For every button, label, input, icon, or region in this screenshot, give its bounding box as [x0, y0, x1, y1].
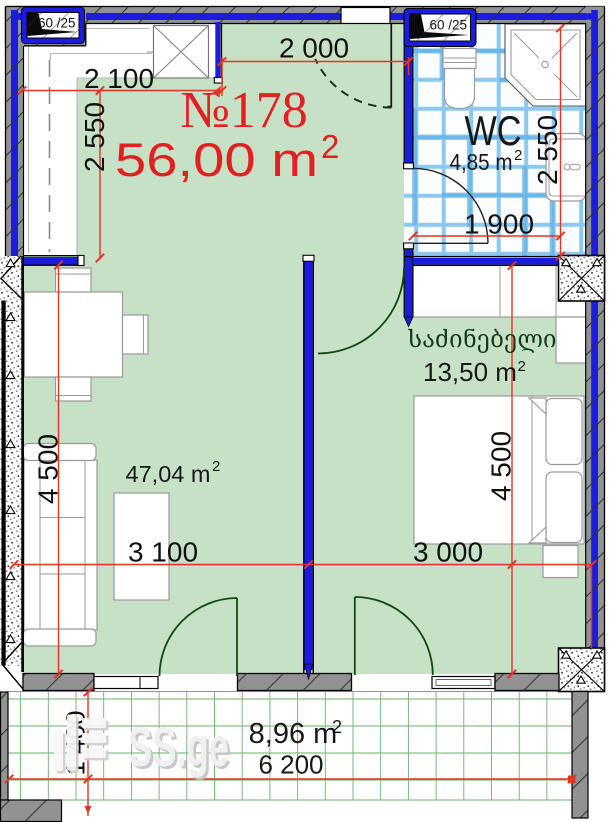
- svg-text:13,50 m: 13,50 m: [423, 357, 517, 387]
- svg-text:2 000: 2 000: [279, 33, 349, 64]
- svg-text:SS.ge: SS.ge: [128, 715, 229, 778]
- svg-text:№178: №178: [180, 82, 308, 139]
- svg-text:2 100: 2 100: [84, 63, 154, 94]
- svg-text:2: 2: [518, 358, 526, 375]
- svg-text:6 200: 6 200: [258, 750, 323, 780]
- svg-text:3 000: 3 000: [413, 537, 483, 568]
- svg-text:2: 2: [321, 128, 339, 165]
- svg-text:2: 2: [514, 147, 522, 164]
- svg-text:4 500: 4 500: [33, 434, 64, 504]
- svg-text:WC: WC: [465, 107, 522, 154]
- svg-text:1 900: 1 900: [464, 209, 534, 240]
- svg-text:56,00 m: 56,00 m: [115, 133, 318, 186]
- svg-text:2: 2: [332, 717, 342, 737]
- svg-text:2: 2: [212, 458, 220, 475]
- svg-text:2 550: 2 550: [532, 115, 563, 185]
- svg-text:4,85 m: 4,85 m: [450, 149, 513, 175]
- svg-text:47,04 m: 47,04 m: [126, 461, 211, 487]
- svg-text:2 550: 2 550: [79, 102, 110, 172]
- svg-text:4 500: 4 500: [486, 431, 517, 501]
- svg-text:8,96 m: 8,96 m: [249, 718, 338, 750]
- svg-text:3 100: 3 100: [128, 537, 198, 568]
